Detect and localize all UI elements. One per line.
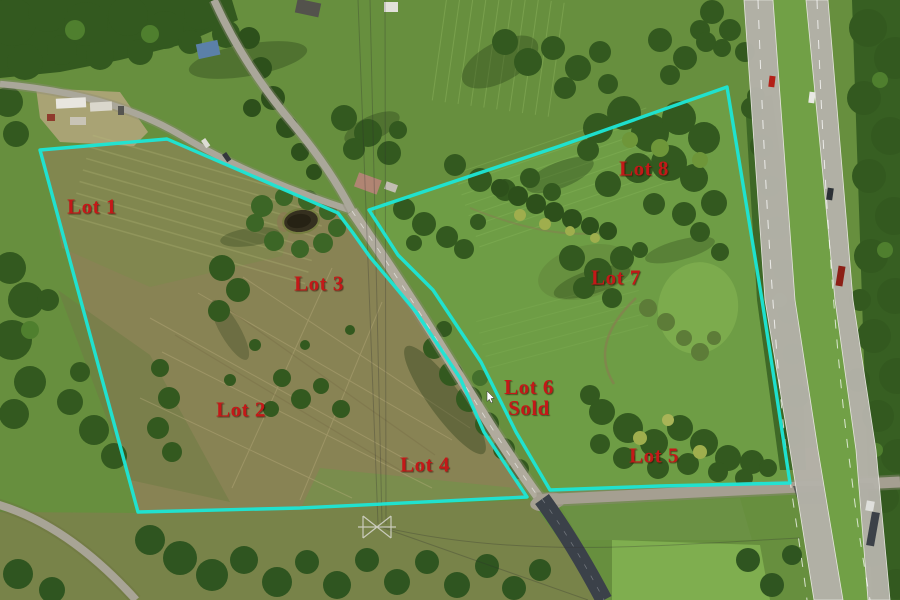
aerial-photo — [0, 0, 900, 600]
aerial-lot-map: Lot 1Lot 2Lot 3Lot 4Lot 5Lot 6SoldLot 7L… — [0, 0, 900, 600]
white-house — [384, 2, 398, 12]
